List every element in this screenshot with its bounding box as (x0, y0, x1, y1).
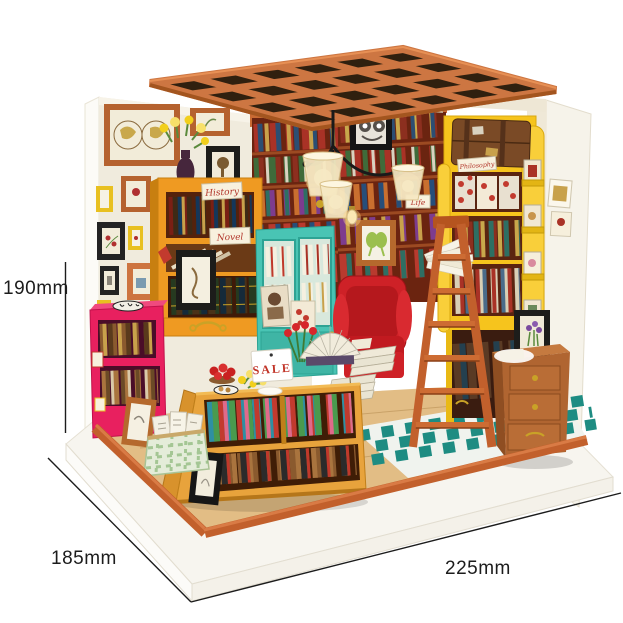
dimension-label-height: 190mm (3, 278, 69, 300)
miniature-scene: Software Popular Life (0, 0, 623, 623)
yellow-frame (96, 186, 113, 212)
heart-frame (121, 176, 151, 212)
dimension-label-depth: 185mm (51, 548, 117, 570)
newspaper-basket (144, 412, 209, 476)
berries-frame (97, 222, 125, 260)
dimension-label-width: 225mm (445, 558, 511, 580)
sale-sign: SALE (251, 349, 293, 383)
history-tag: History (202, 182, 243, 200)
botanical-frame (190, 108, 230, 136)
moth-picture (356, 220, 396, 266)
novel-tag: Novel (210, 227, 251, 244)
yellow-frame (128, 226, 143, 250)
small-black-frame (100, 266, 119, 295)
quilt-cards (455, 176, 519, 210)
mermaid-frame (176, 250, 216, 310)
svg-text:History: History (204, 187, 240, 199)
svg-text:SALE: SALE (252, 361, 292, 378)
lamp-shade (392, 165, 424, 201)
portrait-card (261, 285, 291, 327)
product-photo: Software Popular Life (0, 0, 623, 623)
zebra-dish (214, 386, 238, 395)
svg-text:Novel: Novel (216, 233, 244, 244)
zebra-plate (113, 301, 143, 311)
philosophy-tag: Philosophy (457, 156, 496, 172)
